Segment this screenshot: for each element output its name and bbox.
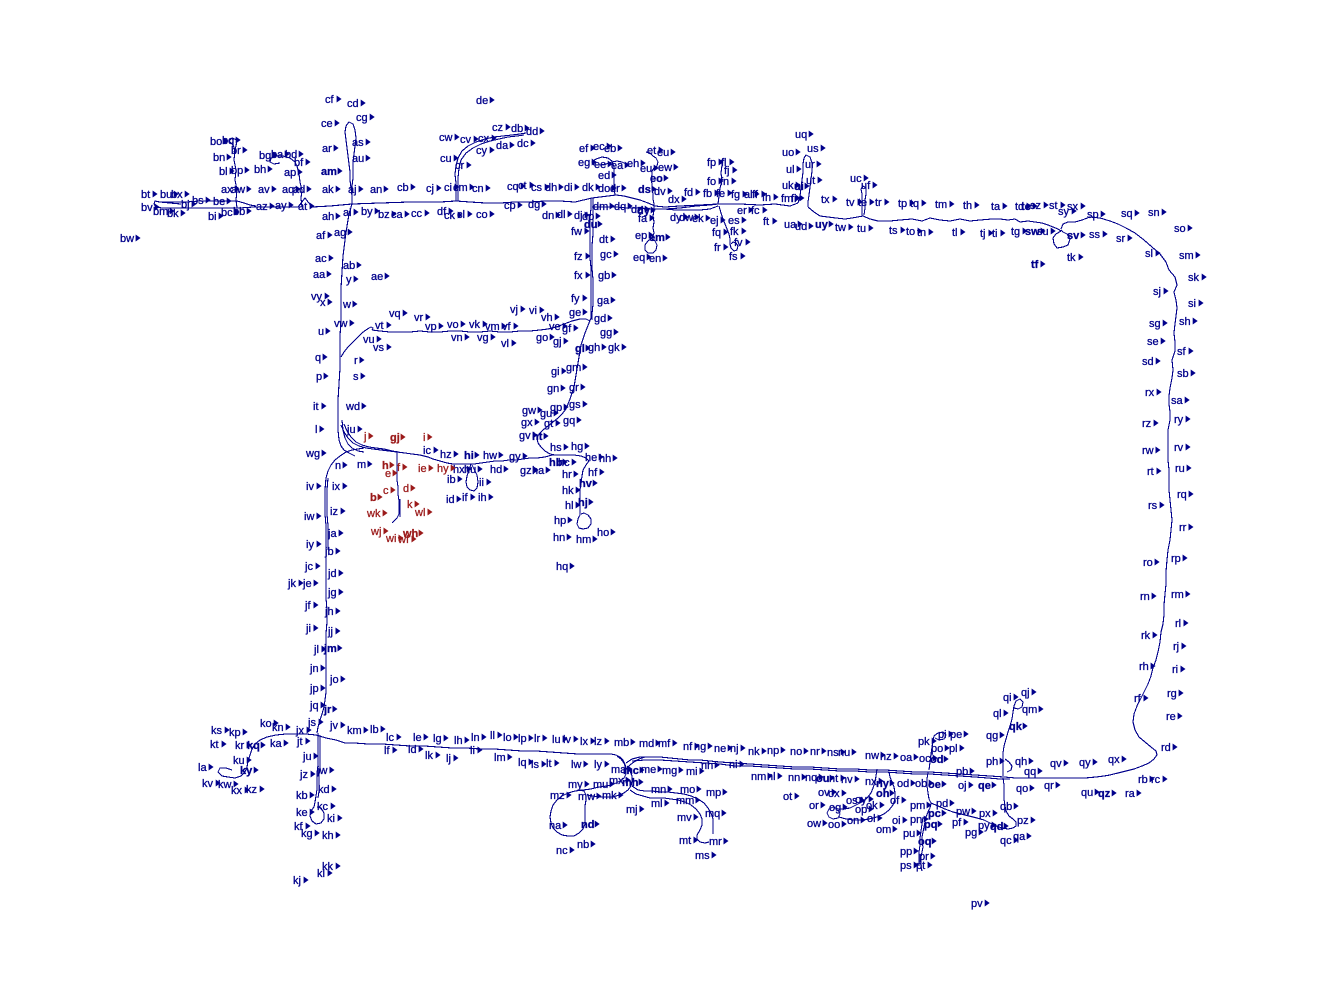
svg-text:rd: rd	[1161, 742, 1171, 754]
svg-text:fq: fq	[712, 227, 721, 239]
svg-text:ld: ld	[408, 744, 417, 756]
svg-text:wk: wk	[366, 508, 381, 520]
svg-text:hj: hj	[578, 497, 588, 509]
svg-text:lp: lp	[518, 733, 527, 745]
svg-text:gg: gg	[600, 327, 612, 339]
svg-text:l: l	[315, 424, 317, 436]
svg-text:cr: cr	[455, 160, 465, 172]
svg-text:qm: qm	[1022, 704, 1037, 716]
svg-text:ht: ht	[532, 431, 543, 443]
svg-text:gm: gm	[566, 362, 581, 374]
svg-text:wf: wf	[397, 534, 410, 546]
svg-text:pe: pe	[950, 729, 962, 741]
svg-text:ri: ri	[1172, 664, 1178, 676]
svg-text:am: am	[321, 166, 337, 178]
svg-text:oa: oa	[900, 752, 913, 764]
svg-text:jh: jh	[324, 606, 334, 618]
svg-text:of: of	[890, 795, 900, 807]
svg-text:ad: ad	[293, 184, 305, 196]
svg-text:sl: sl	[1145, 248, 1153, 260]
svg-text:vj: vj	[510, 304, 518, 316]
svg-text:re: re	[1166, 711, 1176, 723]
svg-text:nm: nm	[751, 771, 766, 783]
svg-text:jn: jn	[309, 663, 319, 675]
svg-text:hh: hh	[599, 453, 611, 465]
svg-text:lm: lm	[494, 752, 506, 764]
svg-text:mq: mq	[705, 808, 720, 820]
svg-text:vg: vg	[477, 332, 489, 344]
svg-text:af: af	[316, 230, 326, 242]
svg-text:ak: ak	[322, 184, 334, 196]
svg-text:kq: kq	[247, 740, 260, 752]
svg-text:nl: nl	[767, 771, 776, 783]
svg-text:nu: nu	[838, 747, 850, 759]
svg-text:j: j	[363, 431, 366, 443]
svg-text:dm: dm	[593, 201, 608, 213]
svg-text:fx: fx	[574, 270, 583, 282]
svg-text:og: og	[829, 802, 841, 814]
svg-text:ac: ac	[315, 253, 327, 265]
svg-text:na: na	[549, 820, 562, 832]
svg-text:qz: qz	[1098, 788, 1111, 800]
svg-text:bg: bg	[259, 150, 271, 162]
svg-text:tn: tn	[917, 227, 926, 239]
svg-text:s: s	[353, 371, 359, 383]
svg-text:oh: oh	[876, 788, 890, 800]
svg-text:oj: oj	[958, 780, 967, 792]
svg-text:fp: fp	[707, 157, 716, 169]
svg-text:fe: fe	[716, 188, 725, 200]
svg-text:gn: gn	[547, 383, 559, 395]
svg-text:ju: ju	[302, 751, 312, 763]
svg-text:rm: rm	[1171, 589, 1184, 601]
svg-text:kl: kl	[317, 868, 325, 880]
svg-text:hv: hv	[579, 478, 593, 490]
svg-text:po: po	[931, 743, 943, 755]
svg-text:qj: qj	[1021, 687, 1030, 699]
svg-text:sf: sf	[1177, 346, 1187, 358]
svg-text:qx: qx	[1108, 754, 1120, 766]
svg-text:nf: nf	[683, 741, 693, 753]
svg-text:as: as	[352, 137, 364, 149]
svg-text:ji: ji	[305, 623, 311, 635]
svg-text:sg: sg	[1149, 318, 1161, 330]
svg-text:ly: ly	[594, 759, 602, 771]
svg-text:rb: rb	[1138, 774, 1148, 786]
svg-text:mj: mj	[626, 804, 638, 816]
svg-text:mv: mv	[677, 812, 692, 824]
svg-text:cg: cg	[356, 112, 368, 124]
svg-text:aa: aa	[313, 269, 326, 281]
svg-text:cs: cs	[531, 182, 543, 194]
svg-text:dv: dv	[654, 186, 666, 198]
svg-text:eq: eq	[633, 252, 645, 264]
svg-text:fy: fy	[571, 293, 580, 305]
svg-text:hi: hi	[464, 450, 474, 462]
svg-text:jd: jd	[327, 568, 337, 580]
svg-text:mr: mr	[709, 836, 722, 848]
svg-text:ol: ol	[867, 813, 876, 825]
svg-text:ct: ct	[518, 180, 527, 192]
svg-text:di: di	[564, 182, 573, 194]
svg-text:ss: ss	[1089, 229, 1101, 241]
svg-text:dn: dn	[542, 210, 554, 222]
svg-text:eu: eu	[657, 147, 669, 159]
svg-text:cx: cx	[478, 133, 490, 145]
svg-text:fj: fj	[724, 165, 730, 177]
svg-text:pk: pk	[918, 736, 930, 748]
svg-text:qy: qy	[1079, 757, 1091, 769]
svg-text:pi: pi	[938, 729, 947, 741]
svg-text:pz: pz	[1017, 815, 1029, 827]
svg-text:m: m	[357, 459, 366, 471]
svg-text:au: au	[352, 153, 364, 165]
svg-text:qq: qq	[1024, 766, 1036, 778]
svg-text:iz: iz	[330, 506, 338, 518]
svg-text:fi: fi	[791, 193, 797, 205]
svg-text:ms: ms	[695, 850, 710, 862]
svg-text:kb: kb	[296, 790, 308, 802]
svg-text:oi: oi	[892, 815, 901, 827]
svg-text:bs: bs	[192, 195, 204, 207]
svg-text:qc: qc	[1000, 835, 1012, 847]
svg-text:bl: bl	[219, 166, 228, 178]
svg-text:pv: pv	[971, 898, 983, 910]
svg-text:rc: rc	[1151, 774, 1161, 786]
svg-text:lb: lb	[370, 724, 379, 736]
svg-text:us: us	[807, 143, 819, 155]
svg-text:mh: mh	[622, 777, 639, 789]
svg-text:da: da	[496, 140, 509, 152]
svg-text:gw: gw	[522, 405, 536, 417]
svg-text:nw: nw	[865, 750, 879, 762]
svg-text:qd: qd	[990, 821, 1003, 833]
svg-text:px: px	[979, 808, 991, 820]
svg-text:mw: mw	[578, 791, 595, 803]
svg-text:pg: pg	[965, 827, 977, 839]
svg-text:rs: rs	[1148, 500, 1158, 512]
svg-text:gv: gv	[519, 430, 531, 442]
svg-text:wd: wd	[345, 401, 360, 413]
svg-text:gd: gd	[594, 313, 606, 325]
svg-text:ba: ba	[271, 149, 284, 161]
svg-text:je: je	[302, 578, 312, 590]
svg-text:on: on	[847, 815, 859, 827]
svg-text:lw: lw	[571, 759, 581, 771]
svg-text:rv: rv	[1174, 442, 1184, 454]
svg-text:ho: ho	[597, 527, 609, 539]
svg-text:cw: cw	[439, 132, 453, 144]
svg-text:fa: fa	[638, 213, 648, 225]
svg-text:mn: mn	[651, 784, 666, 796]
svg-text:bt: bt	[141, 189, 150, 201]
svg-text:rz: rz	[1142, 418, 1151, 430]
svg-text:ed: ed	[598, 170, 610, 182]
svg-text:gt: gt	[544, 418, 553, 430]
svg-text:lq: lq	[518, 757, 527, 769]
svg-text:kg: kg	[301, 828, 313, 840]
svg-text:kv: kv	[202, 778, 214, 790]
svg-text:dd: dd	[526, 126, 538, 138]
svg-text:vt: vt	[375, 320, 384, 332]
svg-text:bi: bi	[208, 211, 217, 223]
svg-text:bj: bj	[181, 199, 190, 211]
svg-text:db: db	[511, 123, 523, 135]
svg-text:fr: fr	[714, 242, 721, 254]
svg-text:fs: fs	[729, 251, 738, 263]
svg-text:cu: cu	[440, 153, 452, 165]
svg-text:my: my	[568, 779, 583, 791]
svg-text:dq: dq	[614, 201, 626, 213]
svg-text:nn: nn	[788, 772, 800, 784]
svg-text:hk: hk	[562, 485, 574, 497]
svg-text:gh: gh	[588, 342, 600, 354]
svg-text:cz: cz	[492, 122, 503, 134]
svg-text:dk: dk	[582, 182, 594, 194]
svg-text:u: u	[318, 326, 324, 338]
svg-text:gb: gb	[598, 270, 610, 282]
svg-text:hc: hc	[558, 457, 570, 469]
svg-text:rg: rg	[1167, 688, 1177, 700]
svg-text:kz: kz	[246, 784, 257, 796]
svg-text:tr: tr	[875, 197, 882, 209]
svg-text:so: so	[1174, 223, 1186, 235]
svg-text:jo: jo	[329, 674, 339, 686]
svg-text:lt: lt	[546, 758, 552, 770]
svg-text:mb: mb	[614, 737, 629, 749]
svg-text:hd: hd	[490, 464, 502, 476]
svg-text:cn: cn	[472, 183, 484, 195]
svg-text:si: si	[1188, 298, 1196, 310]
svg-text:eb: eb	[604, 143, 616, 155]
svg-text:ta: ta	[991, 201, 1001, 213]
svg-text:ga: ga	[597, 295, 610, 307]
svg-text:la: la	[198, 762, 207, 774]
svg-text:iw: iw	[304, 511, 314, 523]
svg-text:cq: cq	[507, 181, 519, 193]
svg-text:eg: eg	[578, 157, 590, 169]
svg-text:go: go	[536, 332, 548, 344]
svg-text:jj: jj	[327, 626, 333, 638]
svg-text:d: d	[403, 483, 409, 495]
svg-text:to: to	[906, 226, 915, 238]
svg-text:bw: bw	[120, 233, 134, 245]
svg-text:ha: ha	[532, 465, 545, 477]
svg-text:p: p	[316, 371, 322, 383]
svg-text:n: n	[335, 460, 341, 472]
svg-text:ar: ar	[322, 143, 332, 155]
svg-text:sa: sa	[1171, 395, 1184, 407]
svg-text:ci: ci	[444, 182, 452, 194]
svg-text:hp: hp	[554, 515, 566, 527]
svg-text:qr: qr	[1044, 780, 1054, 792]
svg-text:uy: uy	[815, 219, 829, 231]
svg-text:bm: bm	[153, 206, 168, 218]
svg-text:fc: fc	[751, 205, 760, 217]
svg-text:kn: kn	[272, 722, 284, 734]
svg-text:lo: lo	[503, 732, 512, 744]
svg-text:ka: ka	[270, 738, 283, 750]
svg-text:ul: ul	[786, 164, 795, 176]
svg-text:q: q	[315, 352, 321, 364]
svg-text:cy: cy	[476, 145, 488, 157]
svg-text:uo: uo	[782, 147, 794, 159]
svg-text:ie: ie	[418, 463, 427, 475]
svg-text:ql: ql	[993, 708, 1002, 720]
svg-text:rf: rf	[1134, 693, 1142, 705]
svg-text:hs: hs	[550, 442, 562, 454]
svg-text:ow: ow	[807, 818, 821, 830]
svg-text:ll: ll	[490, 730, 495, 742]
svg-text:ra: ra	[1125, 788, 1136, 800]
svg-text:hu: hu	[464, 464, 476, 476]
svg-text:gz: gz	[520, 465, 532, 477]
svg-text:qo: qo	[1016, 783, 1028, 795]
svg-text:ry: ry	[1174, 414, 1184, 426]
svg-text:mt: mt	[679, 835, 691, 847]
svg-text:km: km	[347, 725, 362, 737]
svg-text:js: js	[307, 717, 316, 729]
svg-text:tf: tf	[1031, 259, 1039, 271]
svg-text:mi: mi	[686, 766, 698, 778]
svg-text:tm: tm	[935, 199, 947, 211]
svg-text:ti: ti	[992, 228, 998, 240]
svg-text:iv: iv	[306, 481, 314, 493]
svg-text:gx: gx	[521, 417, 533, 429]
svg-text:jb: jb	[324, 546, 334, 558]
svg-text:ib: ib	[447, 474, 456, 486]
svg-text:ph: ph	[986, 756, 998, 768]
svg-text:mc: mc	[623, 765, 639, 777]
svg-text:qv: qv	[1050, 758, 1062, 770]
svg-text:tx: tx	[821, 194, 830, 206]
svg-text:ce: ce	[321, 118, 333, 130]
svg-text:nv: nv	[841, 774, 853, 786]
svg-text:om: om	[876, 824, 891, 836]
svg-text:fg: fg	[731, 189, 740, 201]
svg-text:vi: vi	[529, 305, 537, 317]
svg-text:ur: ur	[805, 159, 815, 171]
svg-text:nr: nr	[810, 746, 820, 758]
svg-text:md: md	[639, 738, 654, 750]
svg-text:kh: kh	[322, 830, 334, 842]
svg-text:fh: fh	[762, 192, 771, 204]
svg-text:ah: ah	[322, 211, 334, 223]
svg-text:jv: jv	[329, 720, 338, 732]
svg-text:ro: ro	[1143, 557, 1153, 569]
svg-text:mk: mk	[602, 790, 617, 802]
svg-text:ob: ob	[915, 778, 927, 790]
svg-text:ai: ai	[343, 207, 352, 219]
svg-text:by: by	[361, 206, 373, 218]
svg-text:et: et	[647, 145, 656, 157]
svg-text:vf: vf	[502, 321, 512, 333]
svg-text:wg: wg	[305, 448, 320, 460]
svg-text:lk: lk	[425, 750, 433, 762]
svg-text:rq: rq	[1177, 489, 1187, 501]
svg-text:vy: vy	[311, 291, 323, 303]
svg-text:fd: fd	[684, 187, 693, 199]
svg-text:ix: ix	[332, 481, 340, 493]
svg-text:jp: jp	[309, 683, 319, 695]
svg-text:ja: ja	[327, 528, 337, 540]
svg-text:gr: gr	[569, 382, 579, 394]
svg-text:sr: sr	[1116, 233, 1126, 245]
svg-text:bc: bc	[221, 207, 233, 219]
svg-text:rx: rx	[1145, 387, 1155, 399]
svg-text:mm: mm	[676, 795, 694, 807]
svg-text:uq: uq	[795, 129, 807, 141]
svg-text:sz: sz	[1030, 200, 1041, 212]
svg-text:pn: pn	[910, 814, 922, 826]
svg-text:an: an	[370, 184, 382, 196]
svg-text:oe: oe	[928, 779, 941, 791]
svg-text:fw: fw	[571, 226, 582, 238]
svg-text:hz: hz	[440, 449, 452, 461]
svg-text:jm: jm	[323, 643, 337, 655]
svg-text:bv: bv	[141, 202, 153, 214]
svg-text:do: do	[598, 183, 610, 195]
svg-text:ls: ls	[531, 759, 539, 771]
svg-text:ne: ne	[714, 743, 726, 755]
svg-text:vw: vw	[334, 318, 348, 330]
svg-text:b: b	[370, 492, 377, 504]
svg-text:y: y	[346, 274, 352, 286]
svg-text:cj: cj	[426, 183, 434, 195]
svg-text:lv: lv	[563, 734, 571, 746]
svg-text:ay: ay	[275, 200, 287, 212]
svg-text:hl: hl	[565, 500, 574, 512]
svg-text:ve: ve	[549, 321, 561, 333]
svg-text:dl: dl	[557, 209, 566, 221]
svg-text:lz: lz	[594, 736, 602, 748]
svg-text:nc: nc	[556, 845, 568, 857]
svg-text:ko: ko	[260, 718, 272, 730]
svg-text:qg: qg	[986, 730, 998, 742]
svg-text:nb: nb	[577, 839, 589, 851]
svg-text:ii: ii	[479, 477, 484, 489]
svg-text:dt: dt	[599, 234, 608, 246]
svg-text:gc: gc	[600, 249, 612, 261]
svg-text:sd: sd	[1142, 356, 1154, 368]
svg-text:ge: ge	[569, 307, 581, 319]
svg-text:jr: jr	[323, 704, 332, 716]
svg-text:ej: ej	[710, 215, 719, 227]
svg-text:dr: dr	[610, 183, 620, 195]
svg-text:kw: kw	[218, 779, 232, 791]
svg-text:lr: lr	[534, 733, 540, 745]
svg-text:gq: gq	[563, 415, 575, 427]
svg-text:rr: rr	[1179, 522, 1187, 534]
svg-text:fb: fb	[703, 188, 712, 200]
svg-text:tp: tp	[898, 198, 907, 210]
svg-text:vr: vr	[414, 312, 424, 324]
svg-text:kj: kj	[293, 875, 301, 887]
svg-text:rt: rt	[1147, 466, 1154, 478]
svg-text:ru: ru	[1175, 463, 1185, 475]
svg-text:kr: kr	[235, 740, 245, 752]
svg-text:av: av	[258, 184, 270, 196]
svg-text:pt: pt	[916, 860, 925, 872]
svg-text:w: w	[342, 299, 351, 311]
svg-text:me: me	[641, 764, 656, 776]
svg-text:vs: vs	[373, 342, 385, 354]
svg-text:lg: lg	[433, 733, 442, 745]
svg-text:wj: wj	[370, 526, 381, 538]
svg-text:vo: vo	[447, 319, 459, 331]
svg-text:ea: ea	[611, 160, 624, 172]
svg-text:ki: ki	[327, 813, 335, 825]
